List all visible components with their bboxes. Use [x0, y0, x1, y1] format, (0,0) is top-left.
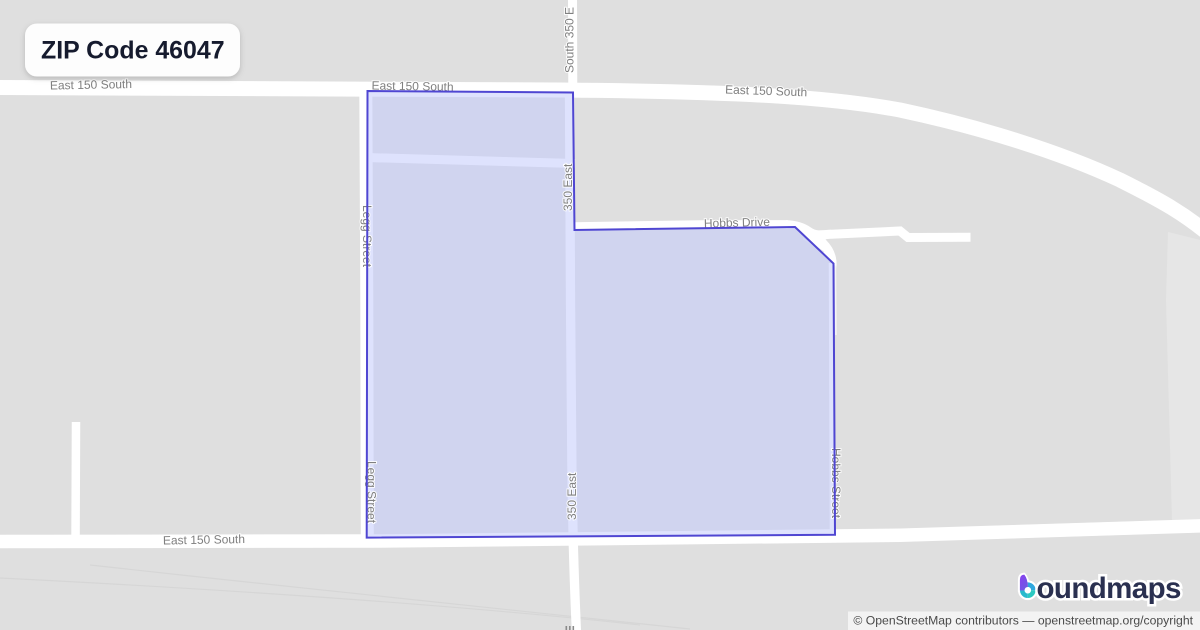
svg-text:East 150 South: East 150 South — [725, 83, 808, 100]
svg-text:© OpenStreetMap contributors —: © OpenStreetMap contributors — openstree… — [853, 614, 1193, 628]
svg-text:East 150 South: East 150 South — [163, 532, 245, 547]
svg-text:Hobbs Street: Hobbs Street — [829, 448, 843, 519]
svg-text:350 East: 350 East — [565, 472, 579, 520]
svg-text:South 350 E: South 350 E — [563, 7, 577, 73]
svg-text:oundmaps: oundmaps — [1037, 572, 1182, 605]
svg-text:East 150 South: East 150 South — [50, 77, 132, 92]
svg-text:ZIP Code 46047: ZIP Code 46047 — [41, 37, 225, 65]
